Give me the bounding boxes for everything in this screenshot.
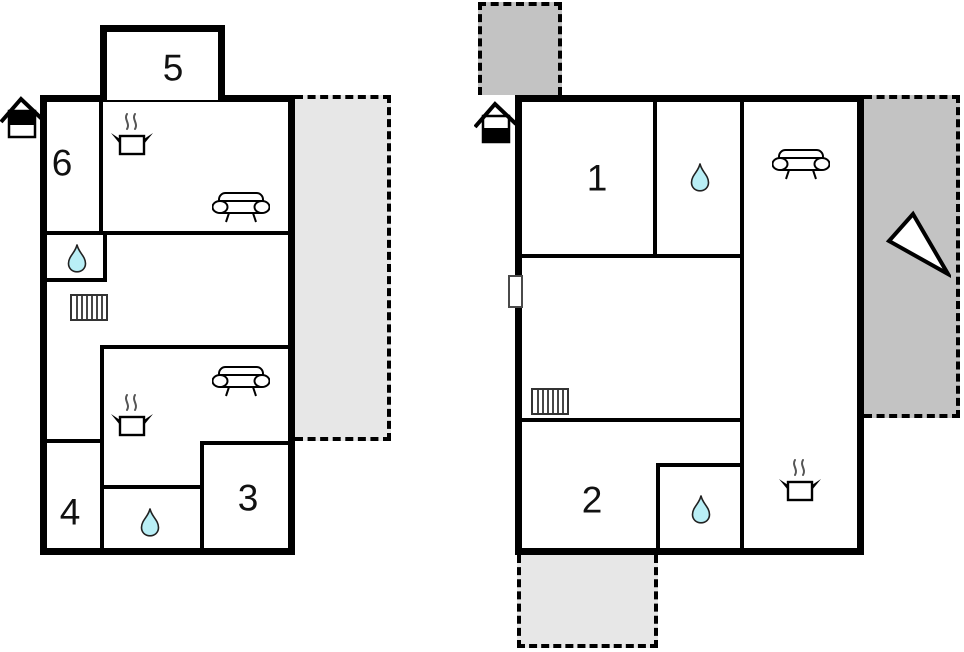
wall [740, 102, 744, 548]
wall [100, 345, 288, 349]
water-drop-icon [66, 243, 88, 273]
sofa-icon [212, 366, 270, 400]
wall [99, 102, 103, 231]
wall [522, 418, 744, 422]
wall [656, 467, 660, 548]
wall [100, 349, 104, 548]
sofa-icon [212, 192, 270, 226]
wall [200, 441, 204, 548]
stairs-icon [70, 294, 108, 321]
wall [200, 441, 288, 445]
wall [656, 463, 744, 467]
upper-floor-indicator-house-icon [0, 96, 46, 140]
stove-icon [110, 112, 154, 158]
left-plan-terrace-right [295, 95, 391, 441]
stairs-icon [531, 388, 569, 415]
room-label-3: 3 [238, 480, 259, 517]
wall [104, 485, 202, 489]
north-arrow-icon [885, 210, 951, 278]
wall [47, 439, 104, 443]
ground-floor-indicator-house-icon [474, 101, 520, 145]
wall [653, 102, 657, 256]
wall [522, 254, 744, 258]
water-drop-icon [139, 507, 161, 537]
wall [47, 278, 107, 282]
water-drop-icon [690, 494, 712, 524]
sofa-icon [772, 149, 830, 183]
wall [47, 231, 288, 235]
room-label-6: 6 [52, 145, 73, 182]
right-plan-terrace-bottom [517, 555, 658, 648]
wall [103, 235, 107, 282]
room-label-5: 5 [163, 50, 184, 87]
room-label-1: 1 [587, 160, 608, 197]
room-label-4: 4 [60, 494, 81, 531]
water-drop-icon [689, 162, 711, 192]
window-marker [508, 275, 523, 308]
room-label-2: 2 [582, 482, 603, 519]
floor-plan-canvas: 5 6 4 3 1 2 [0, 0, 964, 652]
stove-icon [110, 393, 154, 439]
right-plan-terrace-top [478, 2, 562, 95]
stove-icon [778, 458, 822, 504]
